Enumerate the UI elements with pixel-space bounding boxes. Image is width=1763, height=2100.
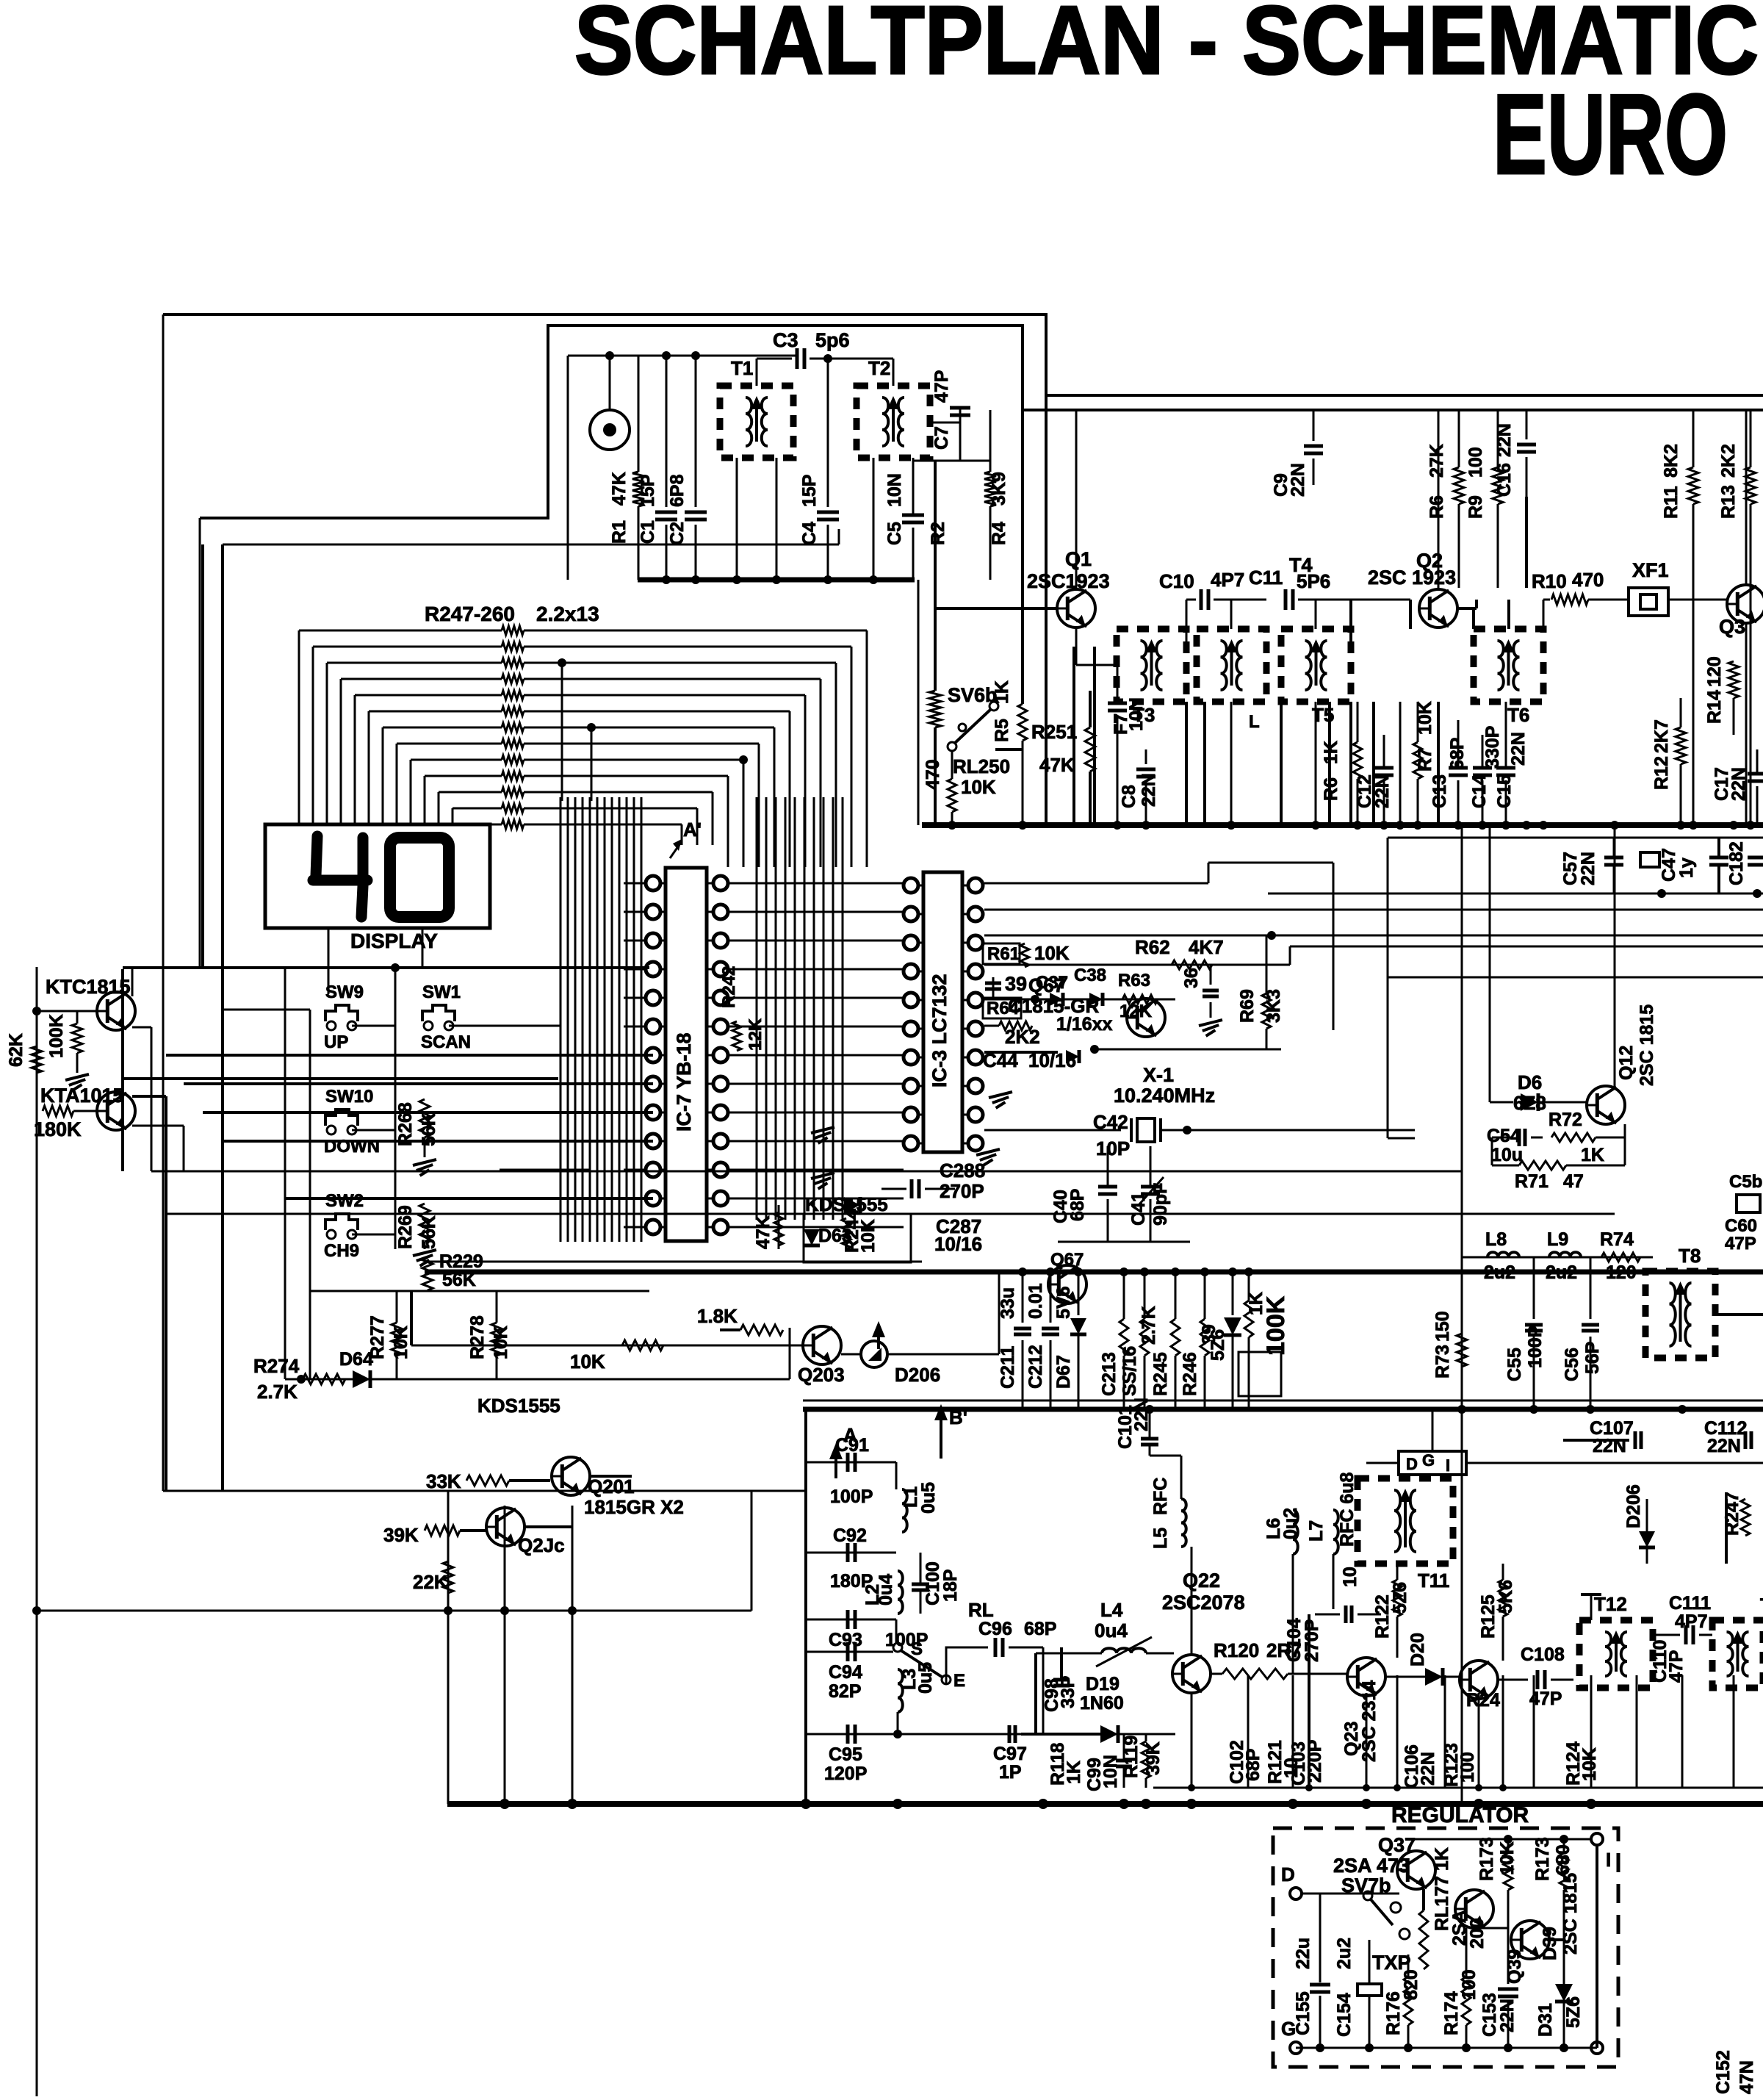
svg-text:10K: 10K: [961, 776, 996, 798]
svg-text:62K: 62K: [6, 1033, 26, 1067]
svg-text:R278: R278: [467, 1315, 488, 1359]
svg-text:C3: C3: [773, 329, 798, 351]
svg-text:C212: C212: [1025, 1345, 1046, 1389]
svg-text:2u2: 2u2: [1334, 1938, 1355, 1969]
svg-text:47N: 47N: [1737, 2060, 1757, 2094]
svg-text:2SC 1815: 2SC 1815: [1637, 1004, 1657, 1086]
svg-text:T8: T8: [1679, 1245, 1701, 1267]
svg-text:R1: R1: [609, 520, 630, 544]
svg-text:2SC1923: 2SC1923: [1027, 570, 1110, 592]
svg-text:C213: C213: [1099, 1352, 1120, 1396]
svg-text:D: D: [1406, 1455, 1418, 1473]
svg-text:R274: R274: [253, 1355, 300, 1377]
svg-text:22N: 22N: [1139, 773, 1159, 807]
svg-text:10P: 10P: [1096, 1137, 1130, 1159]
svg-text:C182: C182: [1726, 841, 1747, 885]
svg-text:S: S: [911, 1639, 923, 1659]
svg-text:2K7: 2K7: [1651, 719, 1672, 753]
svg-text:SS/16: SS/16: [1120, 1346, 1140, 1396]
svg-text:R6: R6: [1427, 495, 1447, 519]
svg-text:1P: 1P: [999, 1762, 1022, 1783]
svg-text:68P: 68P: [1243, 1749, 1263, 1781]
svg-text:RL177 1K: RL177 1K: [1432, 1847, 1452, 1931]
svg-text:D206: D206: [1623, 1484, 1644, 1528]
svg-text:SV7b: SV7b: [1341, 1874, 1391, 1896]
svg-text:C154: C154: [1334, 1993, 1355, 2037]
svg-text:R251: R251: [1031, 721, 1077, 743]
svg-text:470: 470: [1572, 569, 1604, 591]
svg-text:3K9: 3K9: [989, 472, 1009, 506]
svg-text:10.240MHz: 10.240MHz: [1114, 1085, 1215, 1107]
svg-text:1K: 1K: [1064, 1761, 1084, 1784]
svg-text:D31: D31: [1535, 2003, 1556, 2037]
svg-text:22N: 22N: [1288, 463, 1308, 497]
svg-text:5p6: 5p6: [815, 329, 850, 351]
svg-text:2SA 473: 2SA 473: [1333, 1855, 1410, 1877]
svg-text:47P: 47P: [1666, 1650, 1687, 1683]
svg-text:C155: C155: [1293, 1991, 1313, 2035]
svg-text:C95: C95: [829, 1744, 862, 1765]
svg-text:Q3: Q3: [1719, 616, 1745, 638]
svg-text:C91: C91: [835, 1435, 869, 1456]
svg-text:C7: C7: [931, 426, 952, 450]
svg-text:C2: C2: [667, 522, 688, 545]
svg-text:C94: C94: [829, 1662, 862, 1683]
svg-text:22N: 22N: [1707, 1436, 1741, 1456]
svg-text:R12: R12: [1651, 756, 1672, 790]
svg-text:0u5: 0u5: [915, 1662, 936, 1694]
svg-text:R13: R13: [1718, 485, 1739, 519]
svg-text:C111: C111: [1669, 1593, 1711, 1614]
svg-text:330P: 330P: [1482, 726, 1503, 769]
svg-text:C55: C55: [1504, 1348, 1525, 1381]
svg-text:R246: R246: [1180, 1352, 1200, 1396]
svg-text:SCAN: SCAN: [421, 1032, 471, 1052]
svg-text:18P: 18P: [940, 1569, 961, 1602]
svg-text:R9: R9: [1465, 495, 1486, 519]
svg-text:4P7: 4P7: [1675, 1611, 1707, 1632]
svg-text:I: I: [1446, 1456, 1450, 1475]
svg-text:8K2: 8K2: [1661, 444, 1681, 478]
svg-text:4P7: 4P7: [1211, 569, 1244, 591]
svg-text:12K: 12K: [746, 1018, 765, 1051]
svg-text:22N: 22N: [1418, 1752, 1438, 1786]
svg-text:1.8K: 1.8K: [697, 1305, 738, 1327]
svg-text:680: 680: [1553, 1844, 1573, 1875]
svg-text:56K: 56K: [419, 1215, 439, 1249]
svg-text:0u4: 0u4: [876, 1574, 896, 1605]
svg-text:T2: T2: [868, 357, 890, 379]
svg-text:39: 39: [1005, 973, 1027, 995]
svg-text:270P: 270P: [940, 1180, 984, 1202]
svg-text:C97: C97: [993, 1744, 1027, 1764]
svg-text:C14: C14: [1469, 774, 1490, 808]
svg-text:R10: R10: [1532, 570, 1567, 592]
svg-text:10K: 10K: [1497, 1841, 1518, 1875]
svg-text:RFC 6u8: RFC 6u8: [1337, 1472, 1358, 1547]
svg-text:Q22: Q22: [1183, 1569, 1220, 1592]
svg-text:C38: C38: [1074, 966, 1106, 985]
svg-text:2SC2078: 2SC2078: [1162, 1592, 1245, 1614]
svg-text:T13: T13: [1760, 1595, 1763, 1615]
svg-text:C4: C4: [799, 522, 820, 545]
svg-text:T12: T12: [1594, 1593, 1627, 1615]
svg-text:C152: C152: [1713, 2050, 1734, 2094]
svg-text:1/16xx: 1/16xx: [1056, 1014, 1113, 1035]
svg-text:KDS1555: KDS1555: [477, 1395, 560, 1417]
svg-text:R242: R242: [719, 966, 739, 1008]
svg-text:15P: 15P: [638, 475, 658, 507]
svg-text:5Z6: 5Z6: [1563, 1996, 1584, 2028]
svg-text:220P: 220P: [1305, 1740, 1325, 1783]
svg-text:39K: 39K: [383, 1524, 419, 1546]
svg-text:R173: R173: [1477, 1837, 1497, 1881]
svg-text:2.2x13: 2.2x13: [536, 603, 599, 625]
svg-text:R7: R7: [1415, 748, 1435, 772]
svg-text:100: 100: [1457, 1752, 1478, 1783]
svg-text:L5: L5: [1150, 1528, 1171, 1549]
svg-text:R24: R24: [1466, 1690, 1500, 1711]
svg-text:IC-7 YB-18: IC-7 YB-18: [673, 1032, 695, 1132]
svg-text:Q67: Q67: [1050, 1250, 1084, 1270]
svg-text:R14: R14: [1704, 690, 1725, 724]
svg-text:100P: 100P: [830, 1486, 873, 1507]
svg-text:Q2Jc: Q2Jc: [518, 1534, 565, 1556]
svg-text:X-1: X-1: [1143, 1064, 1174, 1086]
svg-text:R61: R61: [987, 944, 1020, 964]
svg-text:R63: R63: [1118, 971, 1150, 990]
svg-text:RFC: RFC: [1150, 1478, 1171, 1515]
svg-text:R74: R74: [1600, 1229, 1634, 1250]
svg-text:C16: C16: [1494, 463, 1515, 497]
svg-text:L7: L7: [1306, 1520, 1327, 1542]
svg-text:2SC 1923: 2SC 1923: [1368, 567, 1456, 589]
svg-text:15P: 15P: [799, 475, 820, 507]
svg-text:2K2: 2K2: [1718, 444, 1739, 478]
svg-text:10/16: 10/16: [934, 1233, 982, 1255]
svg-text:100K: 100K: [1262, 1295, 1290, 1356]
svg-text:D39: D39: [1540, 1927, 1560, 1960]
svg-text:100K: 100K: [46, 1014, 67, 1058]
svg-text:22N: 22N: [1131, 1398, 1152, 1431]
svg-text:C211: C211: [998, 1346, 1018, 1389]
svg-text:180K: 180K: [34, 1118, 82, 1140]
svg-text:27K: 27K: [1427, 444, 1447, 478]
svg-text:A': A': [683, 819, 702, 841]
svg-text:33K: 33K: [426, 1470, 461, 1492]
svg-text:22u: 22u: [1293, 1938, 1313, 1969]
svg-text:SW9: SW9: [325, 982, 364, 1002]
svg-text:L8: L8: [1485, 1229, 1507, 1250]
svg-text:1K: 1K: [1581, 1145, 1604, 1165]
svg-text:R245: R245: [1150, 1352, 1171, 1396]
svg-text:2K2: 2K2: [1005, 1026, 1040, 1048]
svg-text:10: 10: [1340, 1567, 1360, 1587]
svg-text:D64: D64: [339, 1349, 373, 1370]
svg-text:470: 470: [923, 759, 943, 790]
svg-text:10K: 10K: [858, 1219, 879, 1253]
svg-text:C41: C41: [1128, 1192, 1149, 1226]
svg-text:10K: 10K: [1579, 1747, 1600, 1781]
svg-text:100: 100: [1465, 447, 1486, 478]
svg-text:R2: R2: [928, 522, 948, 545]
svg-text:C56: C56: [1562, 1348, 1582, 1381]
svg-text:22N: 22N: [1497, 1999, 1518, 2032]
svg-text:C5: C5: [884, 522, 905, 545]
svg-text:L9: L9: [1547, 1229, 1568, 1250]
svg-text:5P6: 5P6: [1297, 570, 1330, 592]
svg-text:22N: 22N: [1578, 852, 1598, 885]
svg-text:C5b: C5b: [1729, 1172, 1762, 1192]
svg-text:C10: C10: [1159, 570, 1194, 592]
svg-text:R64: R64: [987, 999, 1020, 1018]
svg-text:3K3: 3K3: [1263, 989, 1284, 1023]
svg-text:R120: R120: [1214, 1639, 1259, 1661]
svg-text:KTC1815: KTC1815: [46, 976, 131, 998]
svg-text:22N: 22N: [1728, 767, 1749, 801]
svg-text:10K: 10K: [491, 1326, 511, 1359]
svg-text:IC-3 LC7132: IC-3 LC7132: [929, 974, 951, 1087]
svg-text:1y: 1y: [1676, 857, 1697, 878]
svg-text:10N: 10N: [1126, 697, 1147, 731]
svg-text:D19: D19: [1086, 1674, 1120, 1694]
svg-text:47: 47: [1563, 1171, 1584, 1192]
svg-text:150: 150: [1432, 1311, 1453, 1342]
svg-text:C92: C92: [833, 1525, 867, 1546]
svg-text:2.7K: 2.7K: [257, 1381, 298, 1403]
svg-text:10K: 10K: [391, 1326, 411, 1359]
svg-text:EURO: EURO: [1493, 71, 1728, 198]
svg-text:0u5: 0u5: [918, 1482, 939, 1514]
svg-text:2SC 2314: 2SC 2314: [1359, 1680, 1380, 1762]
svg-text:200: 200: [1467, 1918, 1488, 1949]
svg-text:22N: 22N: [1372, 774, 1393, 808]
svg-text:Q37: Q37: [1378, 1834, 1416, 1856]
svg-text:68P: 68P: [1024, 1619, 1056, 1639]
svg-text:R62: R62: [1135, 936, 1170, 958]
svg-text:68P: 68P: [1447, 738, 1468, 770]
svg-text:D20: D20: [1407, 1633, 1428, 1666]
svg-text:2u2: 2u2: [1546, 1262, 1577, 1283]
svg-text:5Z6: 5Z6: [1390, 1582, 1410, 1614]
svg-text:Q12: Q12: [1616, 1046, 1637, 1080]
svg-text:XF1: XF1: [1632, 559, 1669, 581]
svg-text:820: 820: [1401, 1969, 1421, 2000]
svg-text:SW10: SW10: [325, 1087, 373, 1107]
svg-text:C96: C96: [978, 1619, 1012, 1639]
svg-text:SW1: SW1: [422, 982, 461, 1002]
svg-text:E: E: [953, 1671, 965, 1691]
svg-text:RL250: RL250: [953, 755, 1010, 777]
svg-text:DISPLAY: DISPLAY: [350, 929, 438, 952]
svg-text:5K6: 5K6: [1496, 1580, 1516, 1614]
svg-text:270P: 270P: [1302, 1619, 1322, 1662]
svg-text:C60: C60: [1725, 1216, 1757, 1236]
svg-text:T11: T11: [1418, 1569, 1449, 1592]
svg-text:REGULATOR: REGULATOR: [1391, 1803, 1529, 1827]
svg-text:G: G: [1422, 1451, 1435, 1470]
svg-text:10K: 10K: [570, 1351, 605, 1373]
svg-text:D6: D6: [1518, 1071, 1542, 1093]
svg-text:10u: 10u: [1491, 1145, 1523, 1165]
svg-text:90pF: 90pF: [1150, 1183, 1171, 1226]
svg-text:D206: D206: [895, 1364, 940, 1386]
svg-text:C11: C11: [1249, 567, 1283, 589]
svg-text:C37: C37: [1036, 973, 1068, 993]
svg-text:47K: 47K: [753, 1215, 774, 1249]
svg-text:C93: C93: [829, 1630, 862, 1650]
svg-text:33u: 33u: [998, 1287, 1018, 1319]
svg-text:22N: 22N: [1494, 423, 1515, 457]
svg-text:Q1: Q1: [1065, 548, 1092, 570]
svg-text:C1: C1: [638, 520, 658, 544]
svg-text:47P: 47P: [931, 370, 952, 403]
svg-text:12K: 12K: [1120, 1002, 1153, 1021]
svg-text:120: 120: [1606, 1262, 1637, 1283]
svg-text:47P: 47P: [1725, 1234, 1756, 1254]
svg-text:47K: 47K: [609, 472, 630, 506]
svg-text:Q201: Q201: [588, 1475, 635, 1497]
svg-text:1K: 1K: [992, 680, 1012, 704]
svg-text:R73: R73: [1432, 1345, 1453, 1378]
svg-text:22N: 22N: [1508, 732, 1529, 766]
svg-text:R69: R69: [1237, 989, 1258, 1023]
svg-text:1N60: 1N60: [1080, 1693, 1124, 1714]
svg-text:R247-260: R247-260: [425, 603, 515, 625]
svg-text:5Z6: 5Z6: [1208, 1329, 1228, 1361]
svg-text:68P: 68P: [1067, 1189, 1088, 1221]
svg-text:10K: 10K: [1034, 942, 1070, 964]
svg-text:2u2: 2u2: [1484, 1262, 1515, 1283]
svg-text:0u4: 0u4: [1095, 1619, 1128, 1641]
svg-text:39K: 39K: [1143, 1741, 1164, 1775]
svg-text:Q203: Q203: [798, 1364, 845, 1386]
svg-text:L: L: [1249, 712, 1260, 732]
svg-text:0u2: 0u2: [1280, 1508, 1301, 1539]
svg-text:120: 120: [1704, 656, 1725, 687]
svg-text:SW2: SW2: [325, 1191, 364, 1211]
svg-text:R4: R4: [989, 522, 1009, 545]
svg-text:T6: T6: [1507, 704, 1529, 726]
svg-text:D: D: [1281, 1863, 1295, 1885]
svg-text:R11: R11: [1661, 486, 1681, 519]
svg-text:RL: RL: [968, 1599, 994, 1621]
svg-text:UP: UP: [324, 1032, 348, 1052]
svg-text:5V6: 5V6: [1053, 1287, 1074, 1319]
svg-text:R119: R119: [1121, 1736, 1142, 1778]
svg-text:B': B': [949, 1406, 967, 1428]
svg-text:C108: C108: [1521, 1644, 1565, 1665]
svg-text:10K: 10K: [1415, 701, 1435, 735]
svg-text:100P: 100P: [1525, 1326, 1546, 1368]
svg-text:R72: R72: [1549, 1110, 1582, 1130]
svg-text:L4: L4: [1100, 1599, 1123, 1621]
svg-text:1815GR X2: 1815GR X2: [584, 1496, 684, 1518]
svg-text:4K7: 4K7: [1189, 936, 1224, 958]
svg-text:6P8: 6P8: [667, 474, 688, 507]
svg-text:R71: R71: [1515, 1171, 1549, 1192]
svg-text:I: I: [1606, 1849, 1611, 1871]
svg-text:R5: R5: [992, 719, 1012, 742]
svg-text:10N: 10N: [884, 473, 905, 507]
svg-text:22K: 22K: [413, 1571, 448, 1593]
svg-text:D67: D67: [1053, 1355, 1074, 1389]
svg-text:2.7K: 2.7K: [1139, 1306, 1159, 1345]
svg-text:120P: 120P: [824, 1763, 867, 1784]
svg-text:C8: C8: [1119, 785, 1139, 808]
svg-text:36: 36: [1181, 968, 1202, 988]
svg-text:82P: 82P: [829, 1681, 861, 1702]
svg-text:100: 100: [1459, 1969, 1479, 2000]
svg-text:R173: R173: [1532, 1837, 1553, 1881]
svg-text:56P: 56P: [1582, 1342, 1603, 1374]
svg-text:CH9: CH9: [324, 1241, 359, 1261]
svg-text:R269: R269: [395, 1205, 416, 1249]
svg-text:0.01: 0.01: [1025, 1283, 1046, 1319]
svg-text:C15: C15: [1494, 774, 1515, 808]
svg-text:T1: T1: [731, 357, 753, 379]
